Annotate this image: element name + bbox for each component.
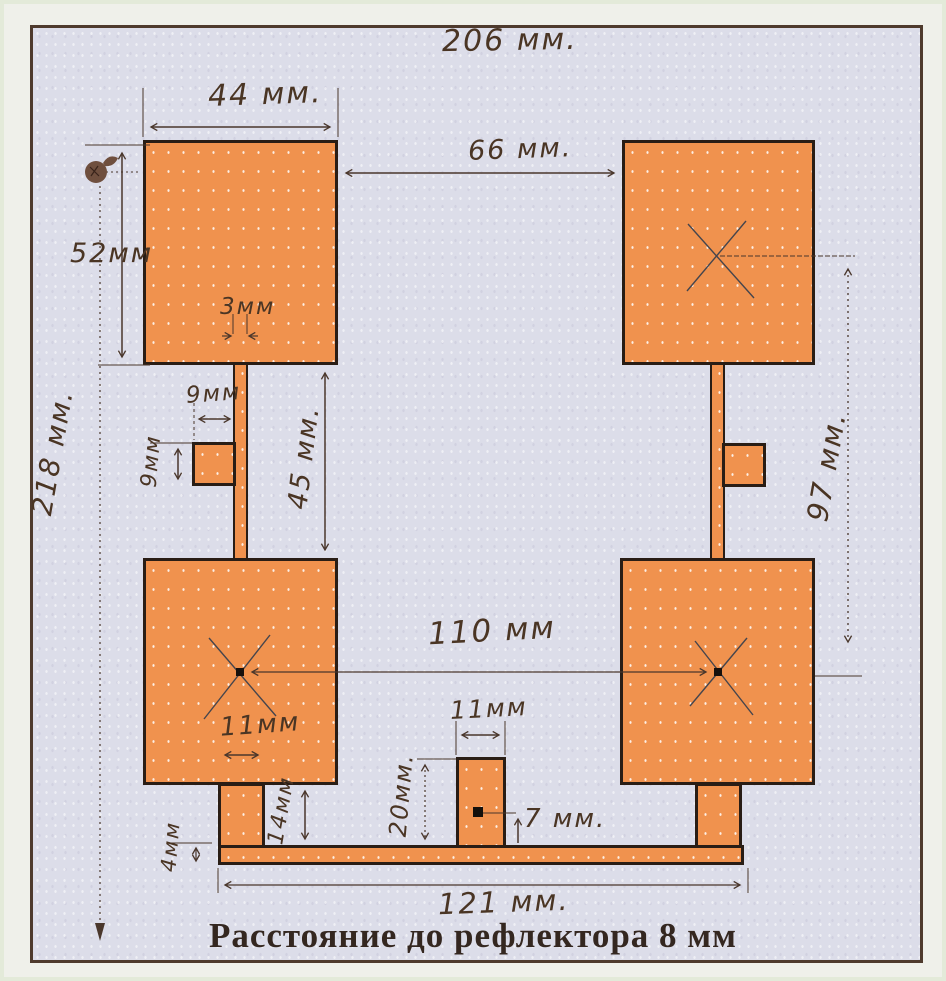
dim-centers-horizontal-label: 110 мм — [427, 613, 556, 651]
dim-left-leg-width-label: 11мм — [219, 709, 301, 741]
dim-left-tab-height-label: 9мм — [139, 432, 166, 490]
dim-patch-height-label: 52мм — [70, 240, 153, 267]
dim-patch-width-label: 44 мм. — [208, 78, 323, 112]
dim-reflector-width-label: 206 мм. — [442, 25, 578, 57]
dim-bar-length-label: 121 мм. — [438, 886, 570, 920]
patch-bottom-left — [143, 558, 338, 785]
dim-feed-point-offset-label: 7 мм. — [524, 806, 606, 832]
patch-bottom-right — [620, 558, 815, 785]
feed-point-dot — [473, 807, 483, 817]
dim-feed-line-width-label: 3мм — [220, 296, 275, 319]
dim-left-tab-width-label: 9мм — [185, 381, 242, 408]
bottom-bar — [218, 845, 744, 865]
center-feed-stub — [456, 757, 506, 848]
patch-top-left — [143, 140, 338, 365]
matching-tab-left — [192, 442, 236, 486]
dim-top-gap-label: 66 мм. — [468, 134, 573, 165]
dim-center-stub-height-label: 20мм. — [386, 758, 417, 838]
dim-center-stub-width-label: 11мм — [449, 694, 528, 723]
matching-tab-right — [722, 443, 766, 487]
leg-bottom-right — [695, 783, 742, 849]
dim-bar-thickness-label: 4мм — [158, 817, 184, 877]
patch-top-right — [622, 140, 815, 365]
drawing-title: Расстояние до рефлектора 8 мм — [30, 916, 916, 956]
leg-bottom-left — [218, 783, 265, 849]
antenna-drawing-page: 206 мм. 44 мм. 66 мм. 52мм 218 мм. 3мм 9… — [0, 0, 946, 981]
